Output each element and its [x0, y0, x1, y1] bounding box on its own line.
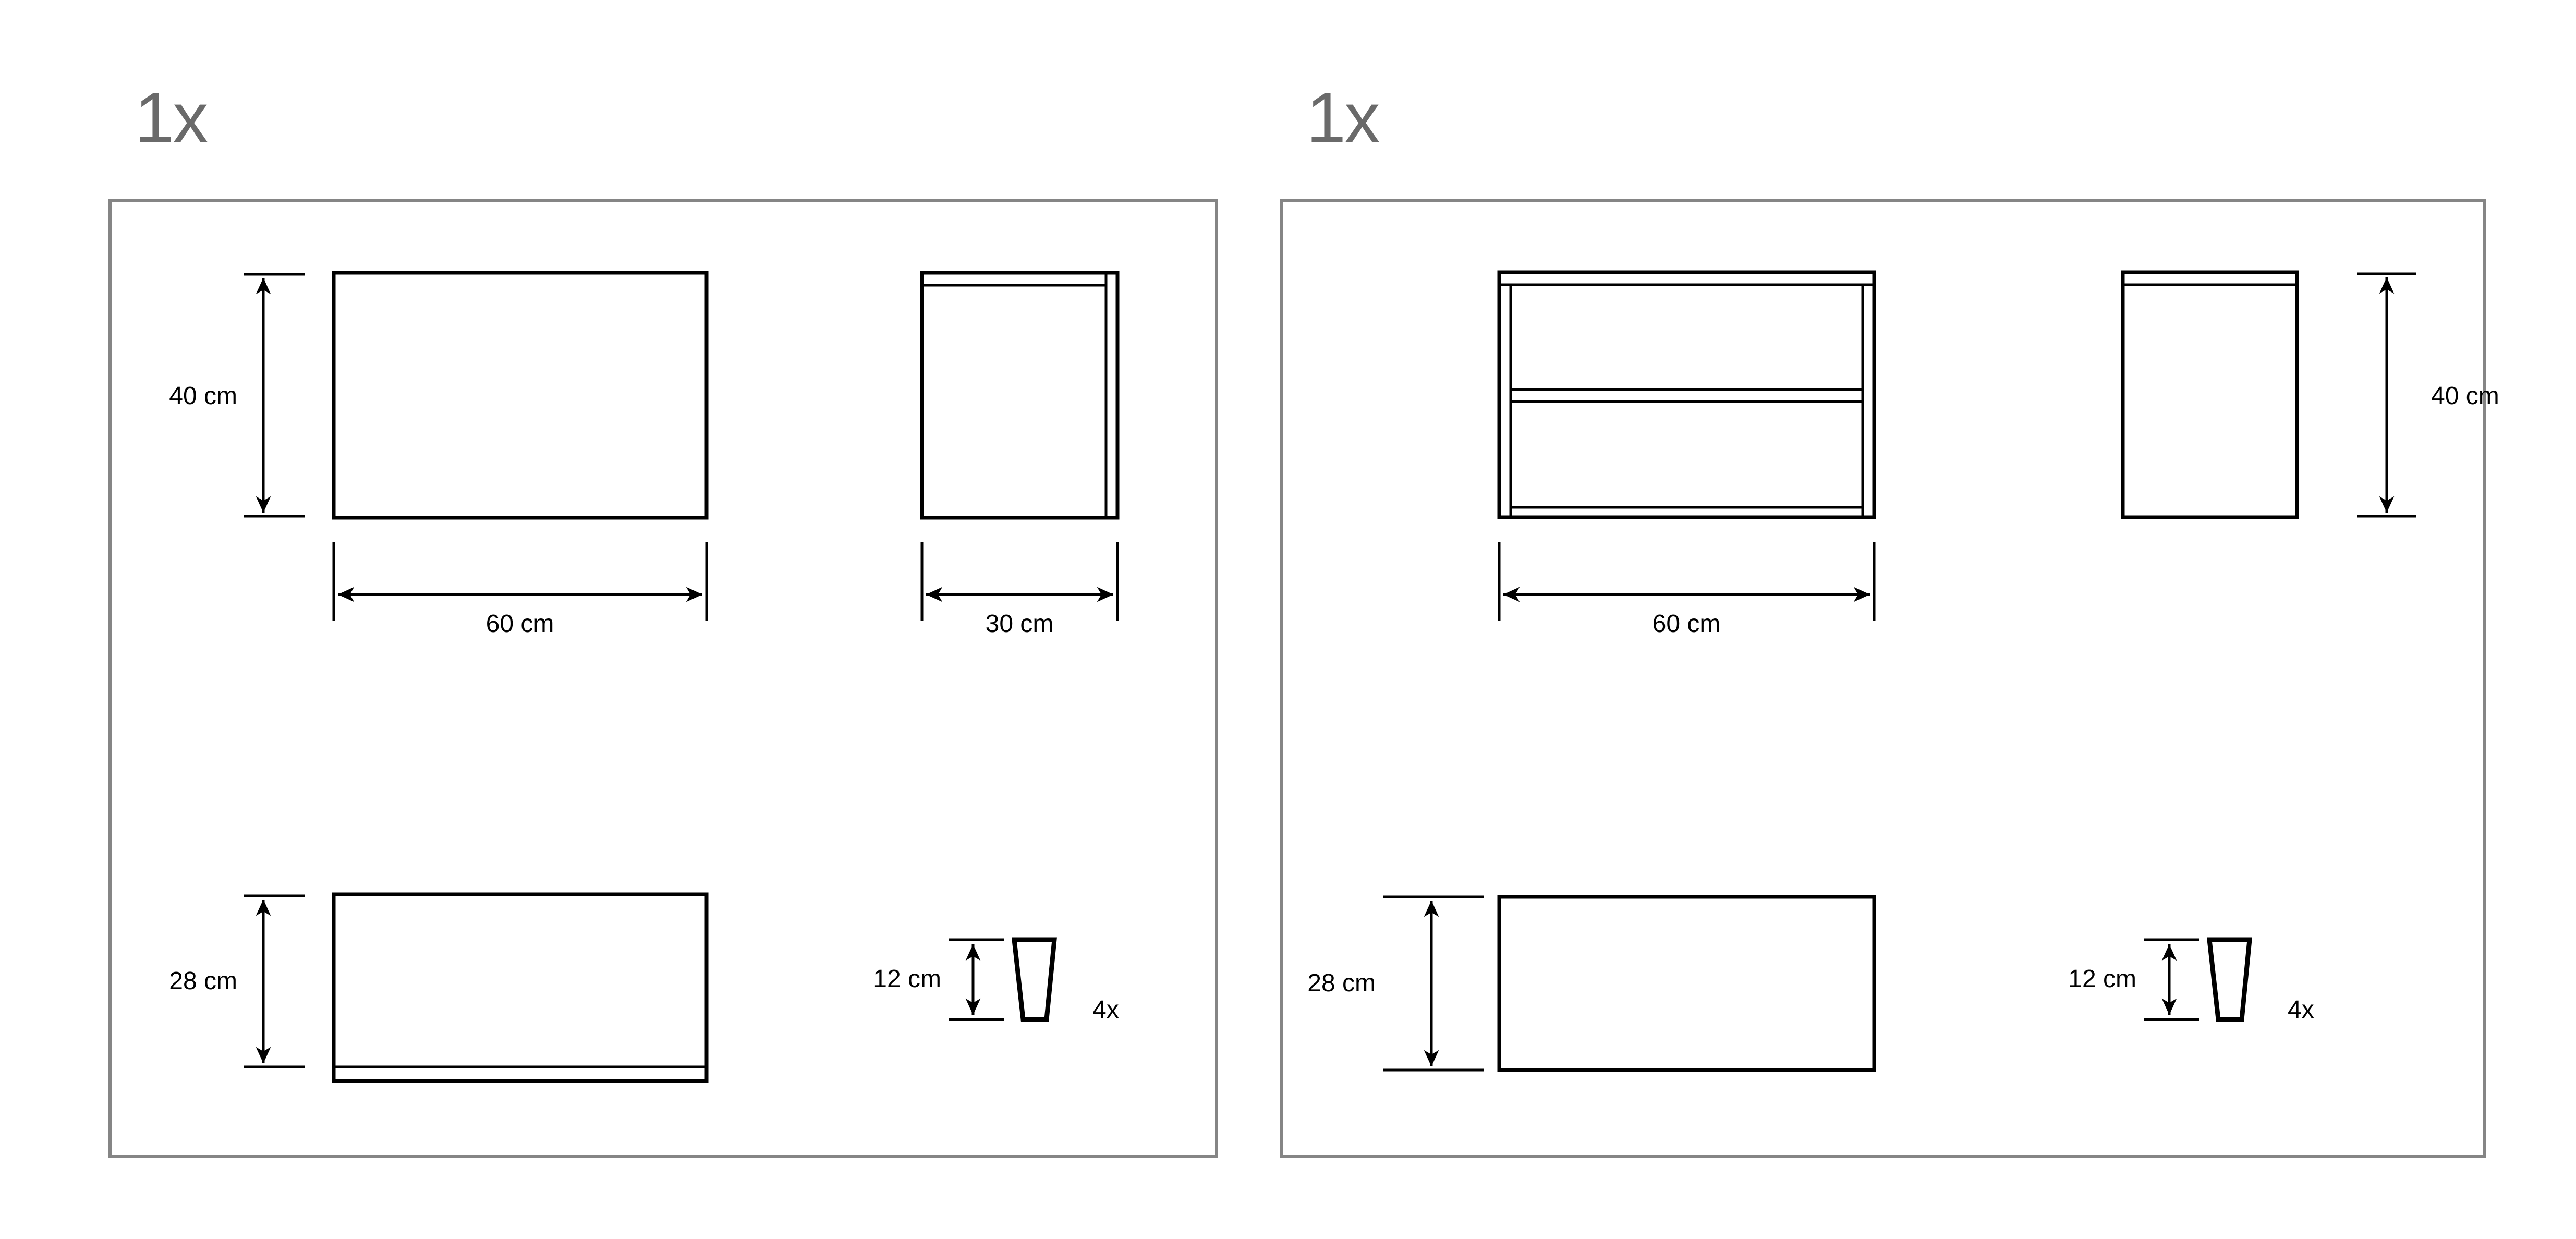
right-height-dimension-label: 40 cm	[2431, 382, 2499, 410]
left-leg-view: 12 cm 4x	[873, 940, 1119, 1024]
right-panel-height-dimension: 28 cm	[1307, 897, 1484, 1070]
right-shelf-outline	[1499, 272, 1874, 517]
left-height-dimension: 40 cm	[169, 274, 305, 516]
left-panel-height-dimension-label: 28 cm	[169, 967, 237, 995]
left-width-dimension-label: 60 cm	[486, 610, 554, 638]
right-panel-piece-outline	[1499, 897, 1874, 1070]
left-leg-outline	[1014, 940, 1054, 1019]
right-leg-outline	[2209, 940, 2250, 1019]
left-depth-dimension: 30 cm	[922, 542, 1117, 638]
right-quantity-label: 1x	[1306, 78, 1380, 158]
right-width-dimension: 60 cm	[1499, 542, 1874, 638]
left-depth-dimension-label: 30 cm	[986, 610, 1054, 638]
left-leg-height-dimension-label: 12 cm	[873, 965, 941, 993]
left-panel-height-dimension: 28 cm	[169, 896, 305, 1067]
left-quantity-label: 1x	[135, 78, 208, 158]
right-side-view	[2123, 272, 2297, 517]
left-side-view-outline	[922, 273, 1117, 518]
left-width-dimension: 60 cm	[334, 542, 707, 638]
right-panel-height-dimension-label: 28 cm	[1307, 969, 1376, 997]
right-shelf-front-view	[1499, 272, 1874, 517]
left-leg-count-label: 4x	[1092, 996, 1119, 1024]
assembly-diagram: 1x 40 cm 60 cm	[0, 0, 2576, 1239]
left-height-dimension-label: 40 cm	[169, 382, 237, 410]
right-leg-height-dimension-label: 12 cm	[2068, 965, 2136, 993]
left-front-view-outline	[334, 273, 707, 518]
right-sheet: 1x 60 cm 40 cm	[1282, 78, 2499, 1156]
right-panel-piece	[1499, 897, 1874, 1070]
right-leg-view: 12 cm 4x	[2068, 940, 2314, 1024]
right-side-view-outline	[2123, 272, 2297, 517]
left-sheet-border	[110, 200, 1217, 1156]
right-height-dimension: 40 cm	[2357, 274, 2499, 516]
right-leg-count-label: 4x	[2288, 996, 2314, 1024]
left-front-view	[334, 273, 707, 518]
left-panel-piece-outline	[334, 894, 707, 1081]
left-side-view	[922, 273, 1117, 518]
left-panel-piece	[334, 894, 707, 1081]
left-sheet: 1x 40 cm 60 cm	[110, 78, 1217, 1156]
right-width-dimension-label: 60 cm	[1652, 610, 1721, 638]
